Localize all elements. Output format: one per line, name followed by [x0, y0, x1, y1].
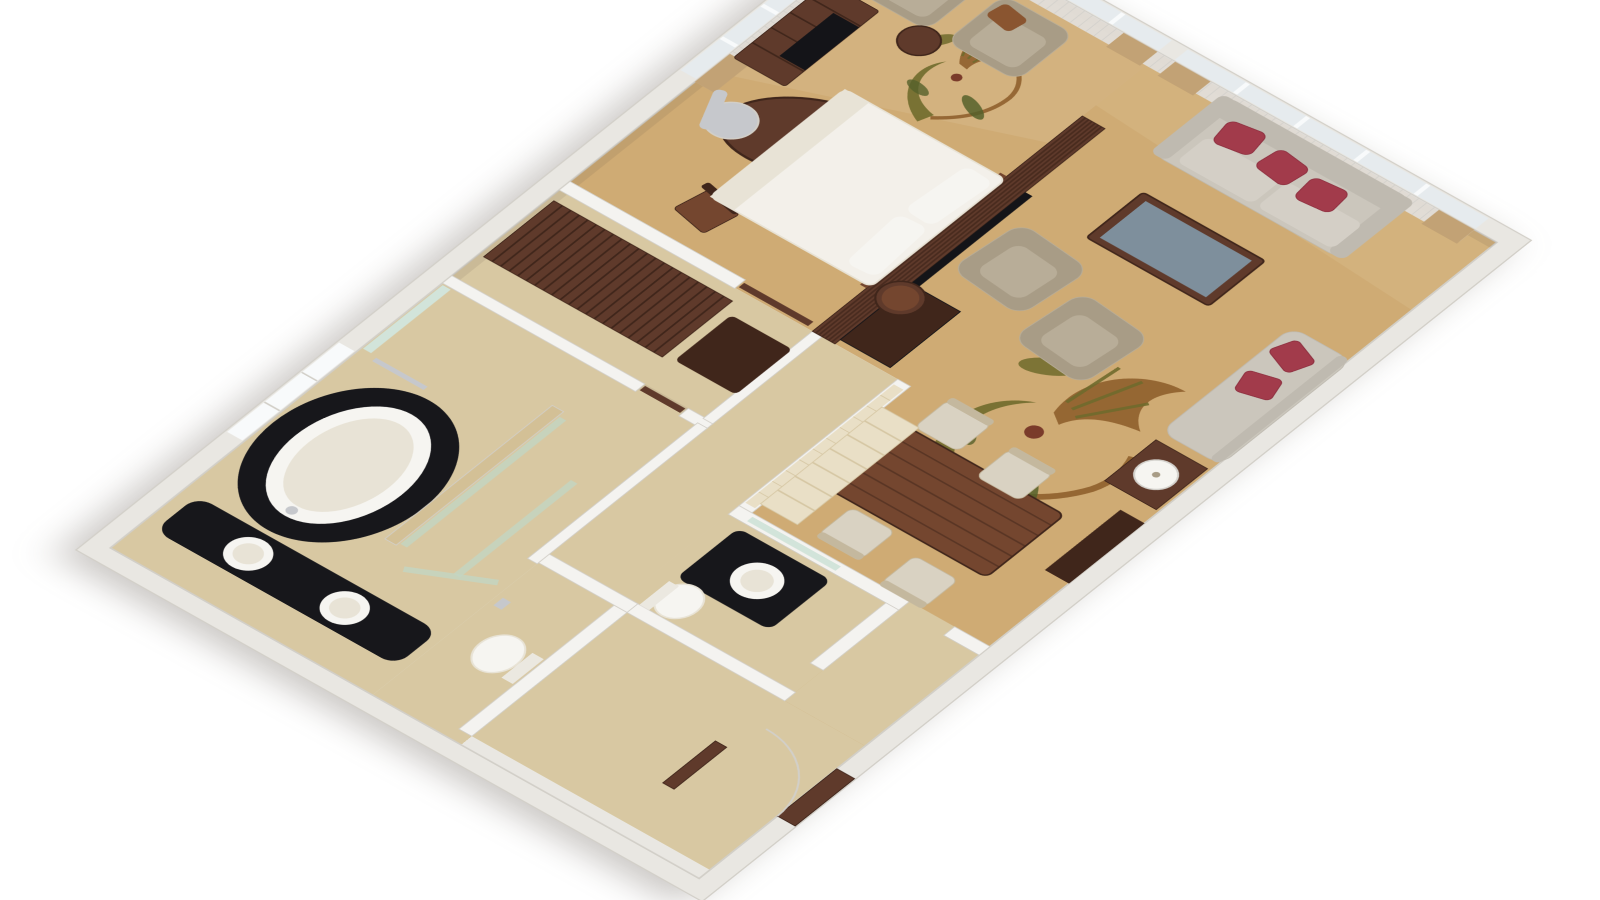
floor-plan-3d-wrapper: [75, 0, 1533, 900]
floor-plan-render: [0, 0, 1600, 900]
floor-plan-svg: [75, 0, 1533, 900]
